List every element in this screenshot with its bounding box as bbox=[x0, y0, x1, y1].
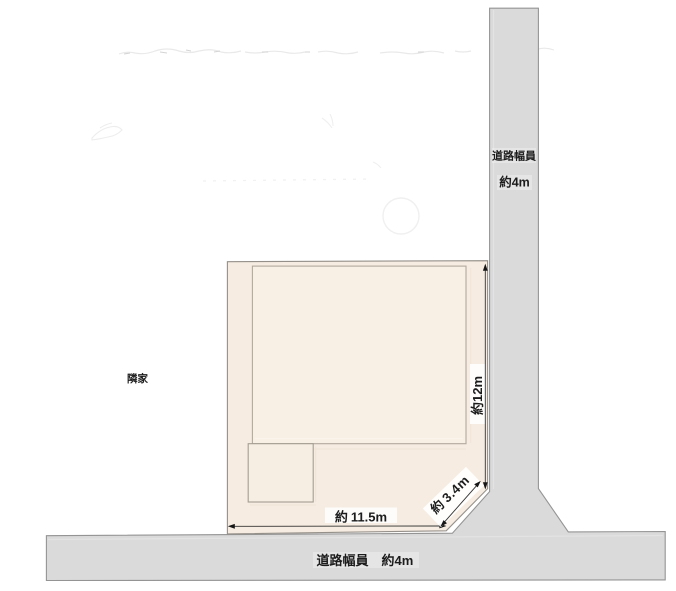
svg-text:隣家: 隣家 bbox=[127, 372, 148, 385]
svg-text:約12m: 約12m bbox=[470, 376, 485, 415]
svg-text:約4m: 約4m bbox=[499, 175, 530, 190]
svg-text:約11.5m: 約11.5m bbox=[335, 510, 387, 525]
svg-text:道路幅員 約4m: 道路幅員 約4m bbox=[317, 553, 414, 568]
svg-text:道路幅員: 道路幅員 bbox=[492, 149, 536, 163]
